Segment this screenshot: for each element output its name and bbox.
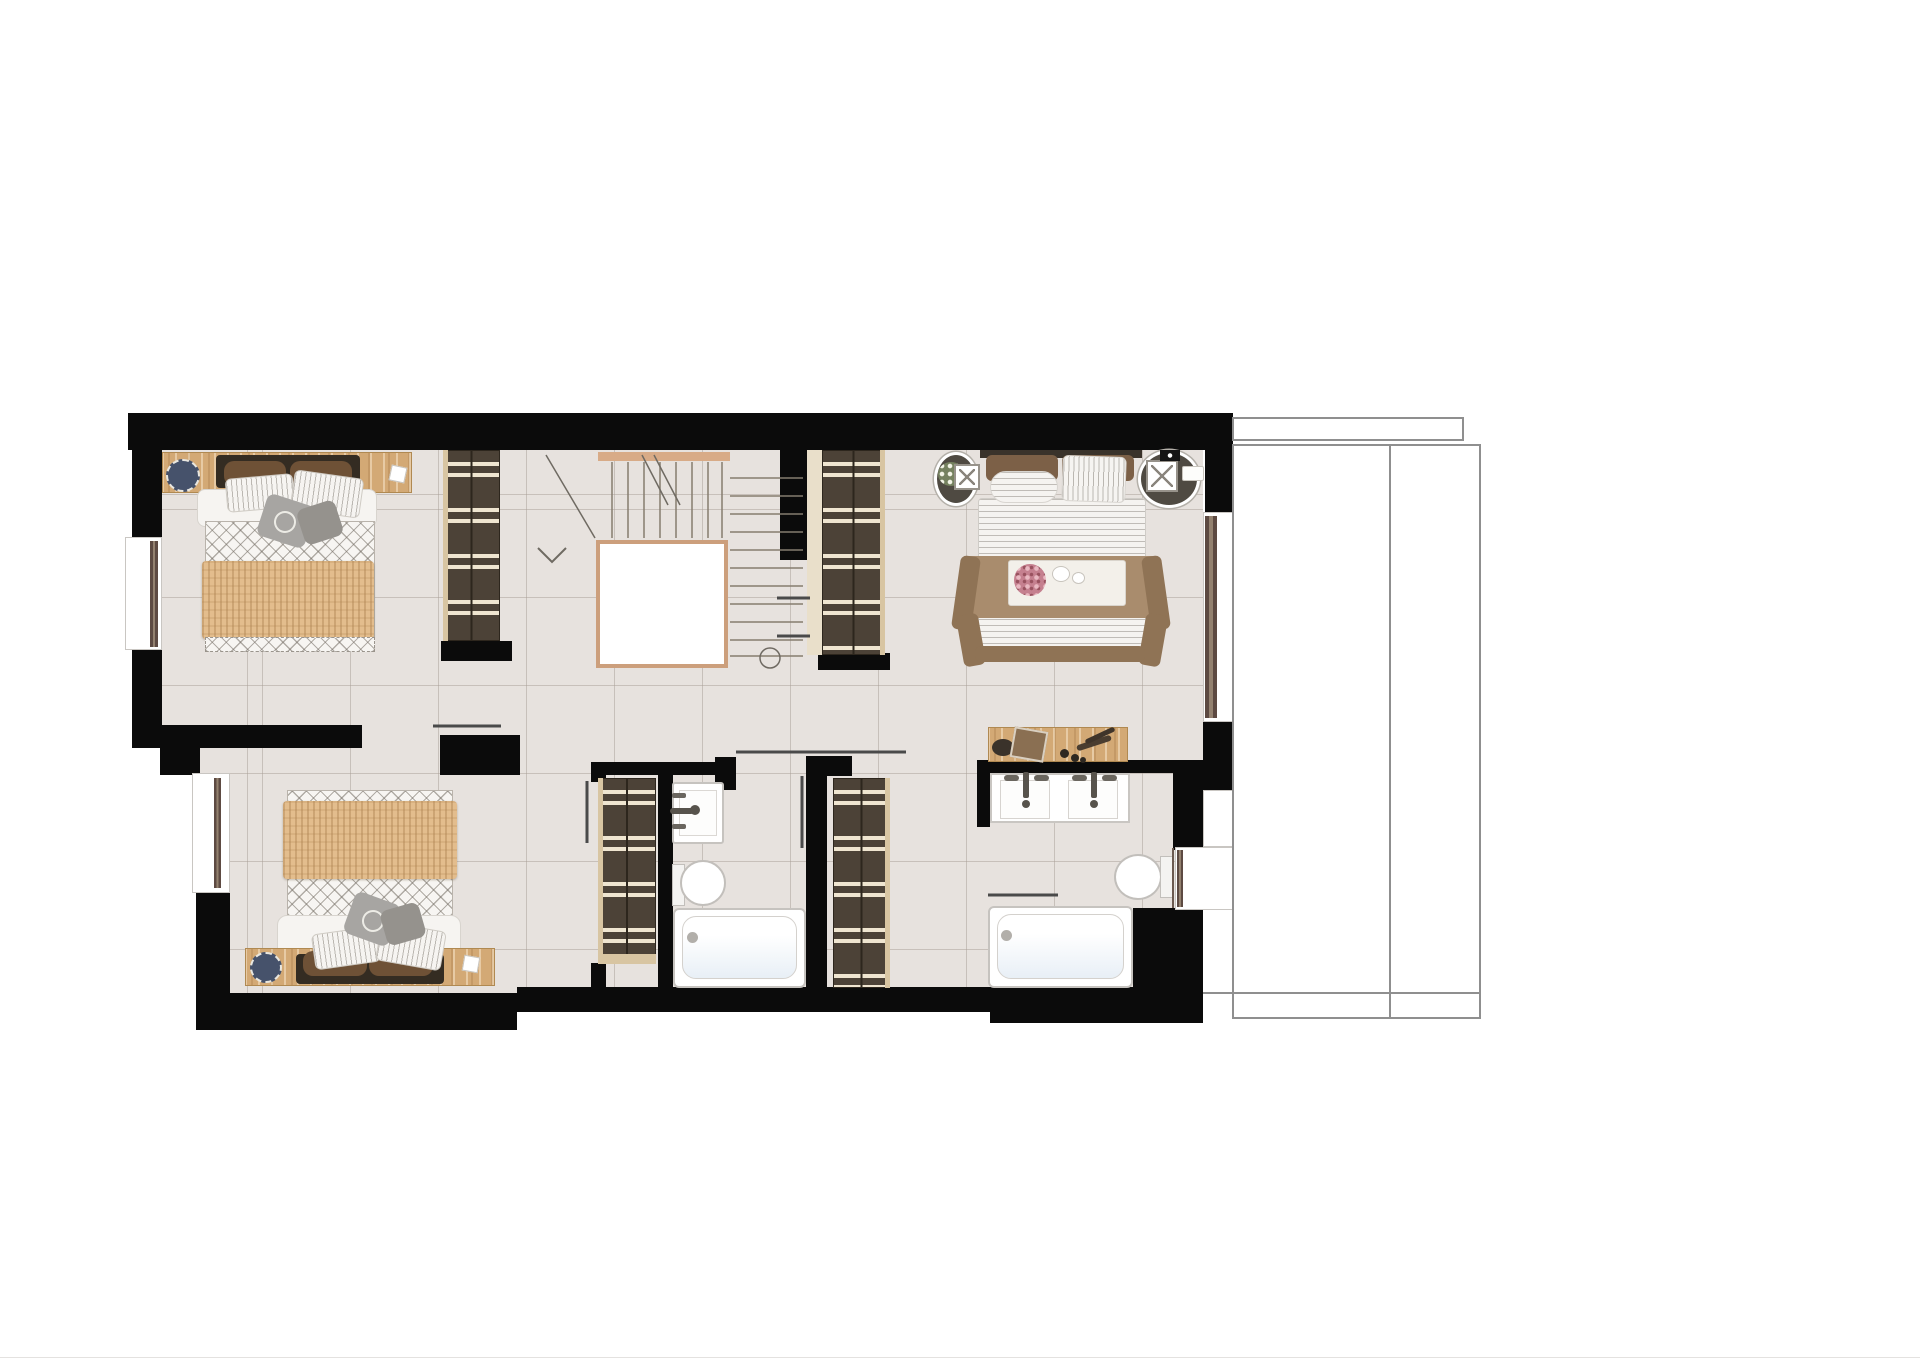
midbath-sink-handle-b: [672, 824, 686, 829]
wall-east-mid: [1203, 720, 1233, 790]
rightbath-handle-c: [1072, 775, 1087, 781]
bedroom2-blanket: [283, 801, 457, 879]
wall-rightbath-east: [1173, 773, 1203, 850]
wall-midbath-west-stub-bottom: [591, 963, 606, 990]
floor-plan-canvas: [0, 0, 1920, 1358]
wall-bedroom-divider: [132, 725, 362, 748]
master-bed-foot-strip: [975, 646, 1145, 662]
rightbath-faucet-left-dot: [1022, 800, 1030, 808]
wall-wardrobe1-stub: [441, 641, 512, 661]
rightbath-handle-b: [1034, 775, 1049, 781]
wall-left-upper: [132, 413, 162, 539]
rightbath-bathtub-drain: [1001, 930, 1012, 941]
master-wall-switch: [1160, 450, 1180, 461]
master-nightstand-left-frame: [954, 464, 980, 490]
bedroom1-nightstand-basket: [166, 459, 200, 492]
rightbath-faucet-right-dot: [1090, 800, 1098, 808]
rightbath-faucet-left: [1023, 772, 1029, 798]
console-dot-b: [1071, 754, 1079, 762]
wall-right-bottom: [990, 987, 1203, 1023]
window-master-east-glass: [1205, 516, 1217, 718]
midbath-sink-knob: [690, 805, 700, 815]
outside-cover-left-window-strip: [160, 773, 196, 1035]
rightbath-toilet-tank: [1160, 856, 1173, 898]
wardrobe-mid-closet-base: [598, 954, 656, 964]
window-bedroom2-west-glass: [214, 778, 221, 888]
terrace-outline-upper: [1233, 418, 1463, 440]
master-bed-tray-flowers: [1014, 564, 1046, 596]
master-bed-pillow-white: [1061, 455, 1127, 503]
midbath-toilet-bowl: [680, 860, 726, 906]
wardrobe-dressing-edge: [885, 778, 890, 988]
master-bed-tray-plate-a: [1052, 566, 1070, 582]
midbath-bathtub-inner: [682, 916, 797, 979]
wall-rightbath-cap: [977, 760, 990, 827]
bedroom2-nightstand-basket: [250, 952, 282, 983]
outside-cover-left-lower: [95, 748, 160, 1040]
wall-mid-bottom: [517, 987, 990, 1012]
wall-bedroom2-west: [196, 888, 230, 995]
rightbath-faucet-right: [1091, 772, 1097, 798]
master-nightstand-right-frame: [1146, 460, 1178, 492]
wardrobe-mid-closet: [598, 778, 656, 964]
wall-bottom-left: [196, 993, 517, 1030]
wardrobe-bedroom1: [443, 450, 500, 641]
midbath-bathtub-drain: [687, 932, 698, 943]
window-bath-east-glass: [1177, 850, 1183, 907]
wall-east-corner: [1205, 450, 1233, 514]
wall-top: [128, 413, 1233, 450]
rightbath-toilet-bowl: [1114, 854, 1162, 900]
stairwell-void: [596, 540, 728, 668]
terrace-outline-main: [1233, 445, 1480, 1018]
rightbath-handle-a: [1004, 775, 1019, 781]
console-dot-c: [1080, 757, 1086, 763]
master-bed-tray-plate-b: [1072, 572, 1085, 584]
outside-cover-bottom-mid: [517, 1012, 990, 1040]
wall-midbath-right-top: [806, 756, 852, 776]
stairs-railing: [598, 452, 730, 461]
wall-midbath-right: [806, 756, 827, 989]
wall-hall-master: [780, 413, 807, 560]
wall-master-wardrobe-stub: [818, 653, 890, 670]
console-dot-a: [1060, 749, 1069, 758]
wardrobe-dressing: [833, 778, 890, 988]
wardrobe-master: [822, 450, 885, 655]
wall-divider-stub: [440, 735, 520, 775]
wardrobe-master-edge: [880, 450, 885, 655]
rightbath-bathtub-inner: [997, 914, 1124, 979]
window-bedroom1-west-glass: [150, 541, 158, 647]
midbath-sink-handle-a: [672, 793, 686, 798]
bedroom1-duvet-fringe: [205, 637, 375, 652]
bedroom1-blanket: [202, 561, 374, 639]
window-bedroom2-west: [192, 773, 230, 893]
wall-midbath-left: [658, 770, 673, 989]
master-nightstand-right-deco: [1182, 466, 1204, 481]
bedroom1-nightstand-deco: [389, 465, 408, 484]
bedroom2-nightstand-deco: [462, 955, 481, 974]
wardrobe-bedroom1-edge: [443, 450, 448, 641]
window-bath-east: [1175, 847, 1233, 910]
wall-right-mass: [1133, 908, 1203, 990]
outside-cover-bottom-right: [990, 1023, 1203, 1040]
console-jewel-box: [1010, 726, 1049, 762]
wardrobe-mid-closet-edge: [598, 778, 603, 964]
wardrobe-master-panel: [807, 450, 822, 655]
vent-east: [1203, 790, 1233, 847]
master-bed-bolster: [990, 471, 1058, 503]
rightbath-handle-d: [1102, 775, 1117, 781]
